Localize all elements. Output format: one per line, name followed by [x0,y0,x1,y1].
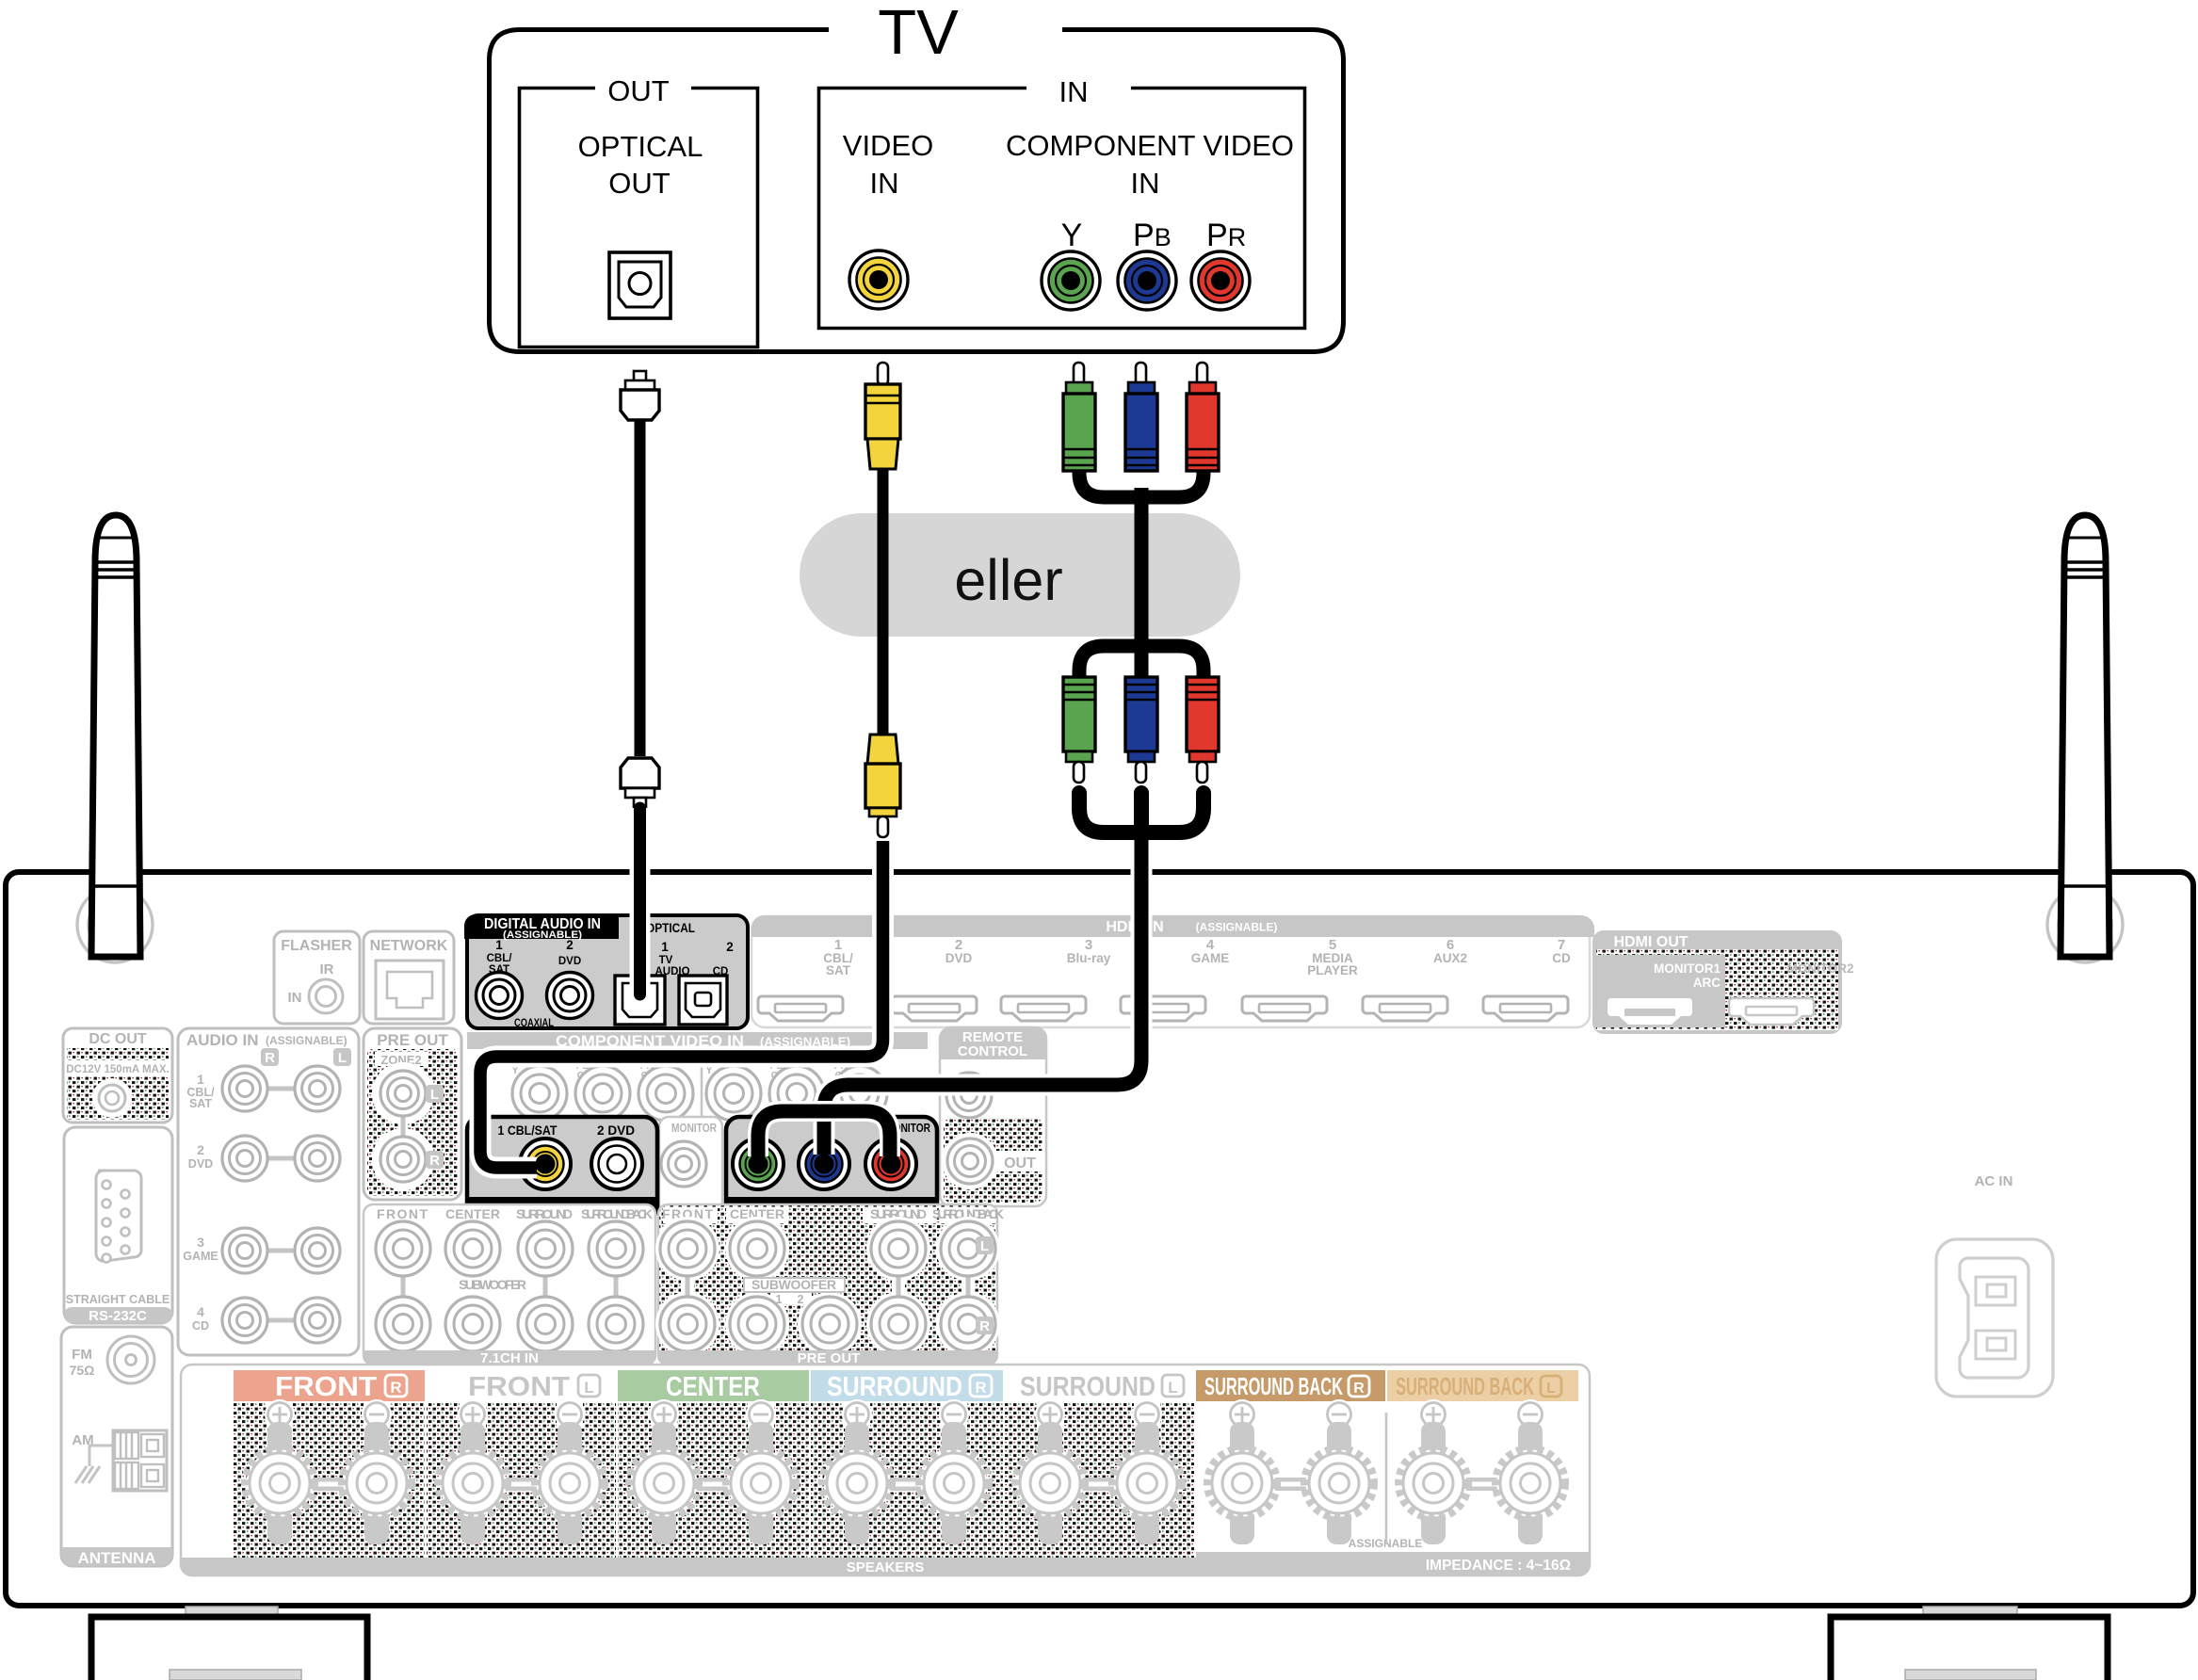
svg-text:AC IN: AC IN [1975,1173,2013,1189]
svg-text:AUX2: AUX2 [1433,951,1467,965]
svg-text:L: L [584,1379,593,1397]
svg-text:CBL/: CBL/ [487,953,513,964]
svg-text:2: 2 [726,940,734,954]
svg-text:PB: PB [1133,218,1172,253]
svg-text:2: 2 [566,938,574,952]
svg-text:SURROUND BACK: SURROUND BACK [1204,1372,1343,1400]
svg-text:2 DVD: 2 DVD [597,1123,635,1138]
svg-text:R: R [975,1379,986,1397]
svg-text:IR: IR [320,961,334,977]
svg-text:CD: CD [192,1319,209,1333]
svg-text:IN: IN [1059,75,1089,108]
svg-text:1: 1 [495,938,503,952]
svg-text:DVD: DVD [188,1157,213,1171]
svg-text:(ASSIGNABLE): (ASSIGNABLE) [1196,921,1278,934]
svg-text:OPTICAL: OPTICAL [578,130,703,163]
svg-text:IN: IN [870,167,899,200]
svg-text:FRONT: FRONT [275,1372,377,1402]
svg-text:OUT: OUT [1004,1155,1036,1171]
svg-text:(ASSIGNABLE): (ASSIGNABLE) [266,1034,347,1047]
svg-text:eller: eller [954,548,1062,612]
svg-text:SURROUND BACK: SURROUND BACK [581,1206,653,1221]
svg-text:ANTENNA: ANTENNA [77,1549,155,1567]
svg-text:ARC: ARC [1693,976,1721,990]
svg-text:1: 1 [661,940,669,954]
svg-text:L: L [338,1050,347,1066]
svg-text:MONITOR2: MONITOR2 [1786,961,1853,976]
svg-text:VIDEO: VIDEO [843,129,933,162]
svg-text:DVD: DVD [558,956,581,967]
svg-text:SUBWOOFER: SUBWOOFER [752,1277,836,1292]
svg-text:RS-232C: RS-232C [89,1308,147,1324]
svg-text:SURROUND: SURROUND [827,1372,962,1402]
svg-text:L: L [430,1087,439,1103]
svg-text:MONITOR1: MONITOR1 [1654,961,1721,976]
svg-text:SURROUND: SURROUND [516,1206,573,1221]
svg-text:2: 2 [197,1142,204,1157]
svg-text:R: R [390,1379,401,1397]
svg-text:CENTER: CENTER [445,1206,500,1221]
svg-text:NETWORK: NETWORK [370,938,448,954]
svg-text:L: L [980,1238,989,1254]
svg-text:FM: FM [72,1347,92,1363]
svg-text:R: R [429,1153,440,1169]
svg-text:SURROUND: SURROUND [1020,1372,1156,1402]
svg-text:Blu-ray: Blu-ray [1067,951,1111,965]
svg-text:COAXIAL: COAXIAL [514,1016,554,1029]
svg-text:FRONT: FRONT [377,1206,428,1221]
svg-text:GAME: GAME [183,1250,218,1263]
svg-text:IN: IN [288,990,302,1006]
svg-text:75Ω: 75Ω [70,1363,95,1378]
svg-text:1 CBL/SAT: 1 CBL/SAT [498,1123,558,1138]
svg-text:L: L [1168,1379,1177,1397]
svg-text:DVD: DVD [945,951,973,965]
svg-text:FRONT: FRONT [468,1372,570,1402]
svg-text:OUT: OUT [608,167,671,200]
svg-text:3: 3 [197,1235,204,1250]
svg-text:CONTROL: CONTROL [958,1043,1027,1059]
svg-text:4: 4 [197,1304,204,1319]
svg-text:R: R [265,1050,275,1066]
svg-text:HDMI OUT: HDMI OUT [1613,934,1688,950]
svg-text:R: R [979,1318,990,1334]
svg-text:OUT: OUT [607,74,670,107]
svg-text:FLASHER: FLASHER [281,938,352,954]
svg-text:STRAIGHT CABLE: STRAIGHT CABLE [66,1293,170,1306]
svg-text:2: 2 [798,1293,804,1306]
svg-text:TV: TV [659,955,673,966]
svg-text:IN: IN [1131,167,1160,200]
svg-text:GAME: GAME [1191,951,1230,965]
svg-text:OPTICAL: OPTICAL [646,921,695,935]
svg-text:L: L [1546,1381,1556,1397]
svg-text:SURROUND BACK: SURROUND BACK [1396,1372,1534,1400]
svg-text:PLAYER: PLAYER [1307,963,1358,977]
svg-text:IMPEDANCE : 4~16Ω: IMPEDANCE : 4~16Ω [1426,1558,1571,1574]
svg-text:SUBWOOFER: SUBWOOFER [459,1277,526,1292]
svg-text:SAT: SAT [826,963,851,977]
svg-text:AUDIO IN: AUDIO IN [186,1031,259,1049]
svg-text:MONITOR: MONITOR [671,1122,717,1135]
svg-text:CD: CD [1552,951,1571,965]
svg-text:SAT: SAT [189,1097,212,1110]
svg-text:DC12V 150mA MAX.: DC12V 150mA MAX. [66,1064,170,1075]
svg-text:CENTER: CENTER [666,1372,760,1402]
svg-text:R: R [1353,1381,1365,1397]
svg-text:DC OUT: DC OUT [89,1031,147,1047]
svg-text:1: 1 [197,1072,204,1087]
svg-text:COMPONENT VIDEO: COMPONENT VIDEO [1006,129,1294,162]
svg-text:TV: TV [878,0,959,68]
svg-text:SPEAKERS: SPEAKERS [847,1559,925,1575]
svg-text:PR: PR [1206,218,1246,253]
svg-text:Y: Y [1061,218,1083,253]
svg-text:PRE OUT: PRE OUT [377,1031,448,1049]
